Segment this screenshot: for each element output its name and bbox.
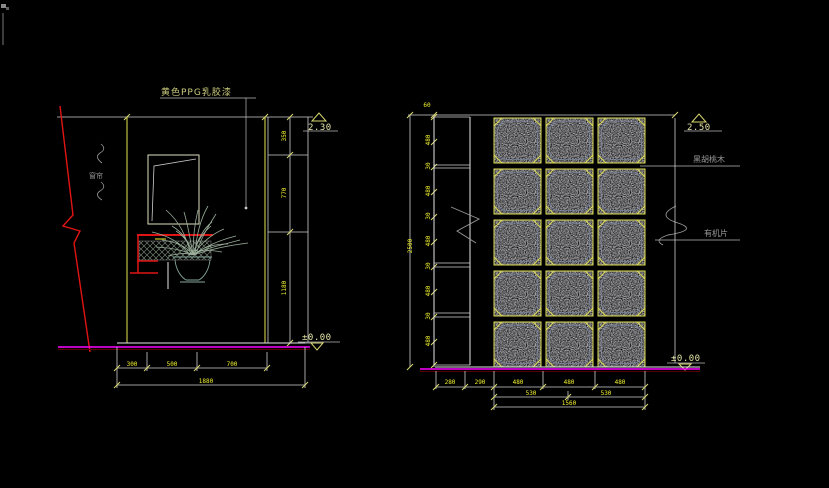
row2-dim-2: 530 xyxy=(601,390,612,397)
grid-cell xyxy=(546,118,593,163)
leader-dot xyxy=(245,207,248,210)
paint-material-label: 黄色PPG乳胶漆 xyxy=(161,86,232,98)
grid-dim-3: 480 xyxy=(615,379,626,386)
elevation-value-top: 2.30 xyxy=(308,123,332,133)
right-view-left-dimensions: 2500 480 30 480 30 480 30 480 30 480 xyxy=(407,114,437,370)
screen-artifact-marks xyxy=(1,4,9,45)
squiggle-top xyxy=(97,144,103,163)
grid-cell xyxy=(598,169,645,214)
panel-grid xyxy=(494,118,645,367)
dim-overall-height: 2500 xyxy=(407,238,414,253)
grid-cell xyxy=(546,169,593,214)
dim-bottom-1: 300 xyxy=(127,361,138,368)
chain-dim-6: 30 xyxy=(425,262,432,270)
cad-drawing-canvas: 窗帘 黄色PPG乳胶漆 3 xyxy=(0,0,829,488)
bottom-overall-dim: 1560 xyxy=(562,400,577,407)
dim-bottom-overall: 1880 xyxy=(199,378,214,385)
grid-cell xyxy=(546,220,593,265)
grid-cell xyxy=(546,322,593,367)
grid-cell xyxy=(494,118,541,163)
strip-dim-2: 290 xyxy=(475,379,486,386)
grid-dim-2: 480 xyxy=(564,379,575,386)
red-break-line xyxy=(60,106,90,352)
material-annotation-top: 黑胡桃木 xyxy=(640,154,740,166)
dim-bottom-2: 500 xyxy=(167,361,178,368)
squiggle-bottom xyxy=(97,182,103,200)
left-view-right-dimensions: 350 770 1180 xyxy=(268,114,313,346)
grid-cell xyxy=(598,118,645,163)
grid-dim-1: 480 xyxy=(513,379,524,386)
dim-bottom-3: 700 xyxy=(227,361,238,368)
mirror-frame xyxy=(148,155,199,224)
grid-cell xyxy=(494,220,541,265)
dim-right-3: 1180 xyxy=(281,280,288,295)
grid-cell xyxy=(494,322,541,367)
chain-dim-3: 480 xyxy=(425,185,432,196)
flower-pot xyxy=(173,257,212,282)
grid-cell xyxy=(546,271,593,316)
dim-top-small: 60 xyxy=(423,102,431,109)
elevation-marker-top-right-view: 2.50 xyxy=(684,114,722,133)
elevation-value-bottom: ±0.00 xyxy=(302,333,332,343)
shelf xyxy=(130,235,213,289)
material-annotation-bottom: 有机片 xyxy=(655,228,740,240)
elevation-value-bottom: ±0.00 xyxy=(671,354,701,364)
chain-dim-1: 480 xyxy=(425,134,432,145)
side-strip-section xyxy=(434,117,470,365)
break-zigzag xyxy=(451,207,479,243)
paint-label-leader xyxy=(160,98,256,207)
dim-right-2: 770 xyxy=(281,187,288,198)
chain-dim-5: 480 xyxy=(425,235,432,246)
grid-cell xyxy=(598,220,645,265)
elevation-marker-bottom-right-view: ±0.00 xyxy=(667,354,705,370)
right-elevation-view: 60 2500 480 30 480 30 480 30 480 30 480 xyxy=(407,102,740,410)
chain-dim-8: 30 xyxy=(425,312,432,320)
grid-cell xyxy=(494,169,541,214)
right-view-bottom-dimensions: 280 290 480 480 480 530 530 1560 xyxy=(433,371,648,410)
s-break-symbol xyxy=(659,206,686,245)
elevation-value-top: 2.50 xyxy=(687,123,711,133)
chain-dim-4: 30 xyxy=(425,212,432,220)
side-label: 窗帘 xyxy=(89,171,103,180)
chain-dim-9: 480 xyxy=(425,335,432,346)
strip-dim-1: 280 xyxy=(445,379,456,386)
elevation-marker-top-left-view: 2.30 xyxy=(303,113,338,133)
grid-cell xyxy=(494,271,541,316)
left-elevation-view: 窗帘 黄色PPG乳胶漆 3 xyxy=(57,86,340,388)
dim-right-1: 350 xyxy=(281,130,288,141)
grid-cell xyxy=(598,271,645,316)
left-view-bottom-dimensions: 300 500 700 1880 xyxy=(114,347,308,388)
material-label-bottom: 有机片 xyxy=(704,228,728,238)
chain-dim-7: 480 xyxy=(425,285,432,296)
row2-dim-1: 530 xyxy=(526,390,537,397)
grid-cell xyxy=(598,322,645,367)
material-label-top: 黑胡桃木 xyxy=(693,154,725,164)
chain-dim-2: 30 xyxy=(425,162,432,170)
